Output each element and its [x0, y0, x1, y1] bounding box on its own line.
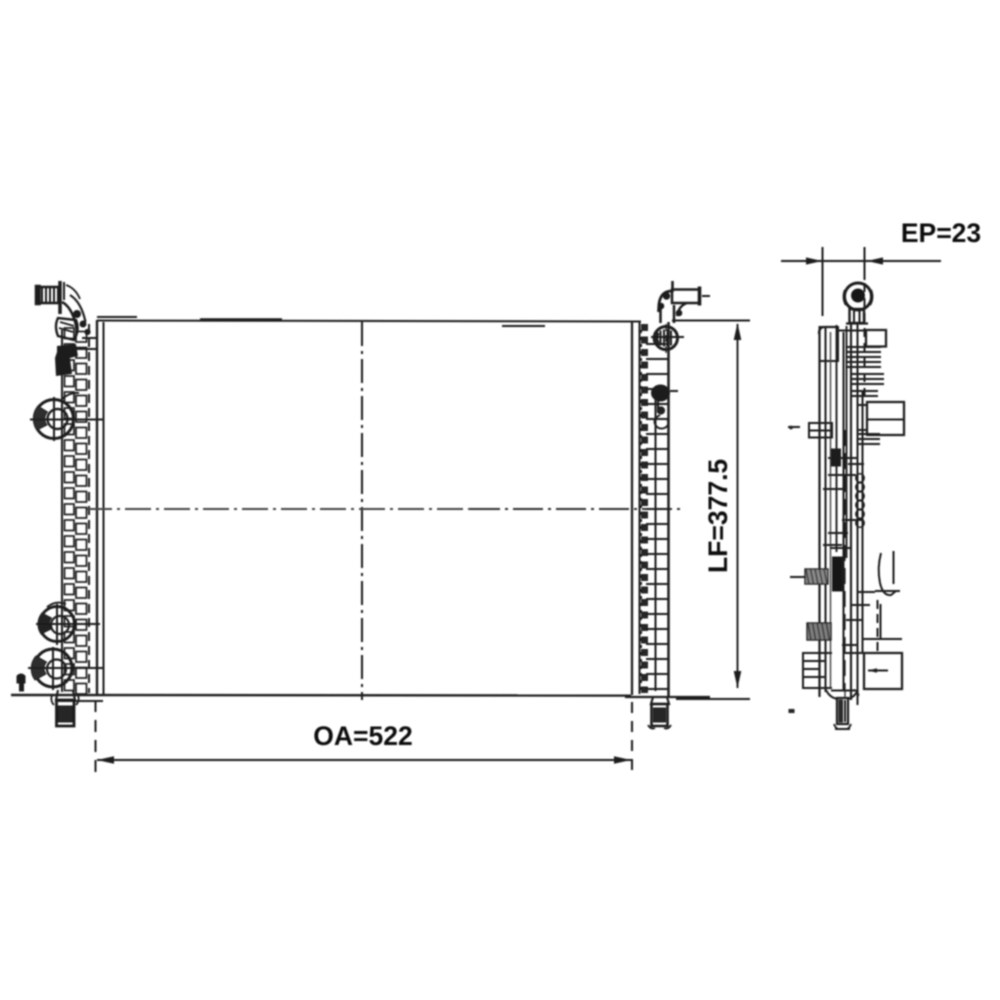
svg-text:LF=377.5: LF=377.5: [703, 459, 733, 573]
svg-text:OA=522: OA=522: [313, 721, 412, 751]
svg-text:EP=23: EP=23: [901, 218, 981, 248]
